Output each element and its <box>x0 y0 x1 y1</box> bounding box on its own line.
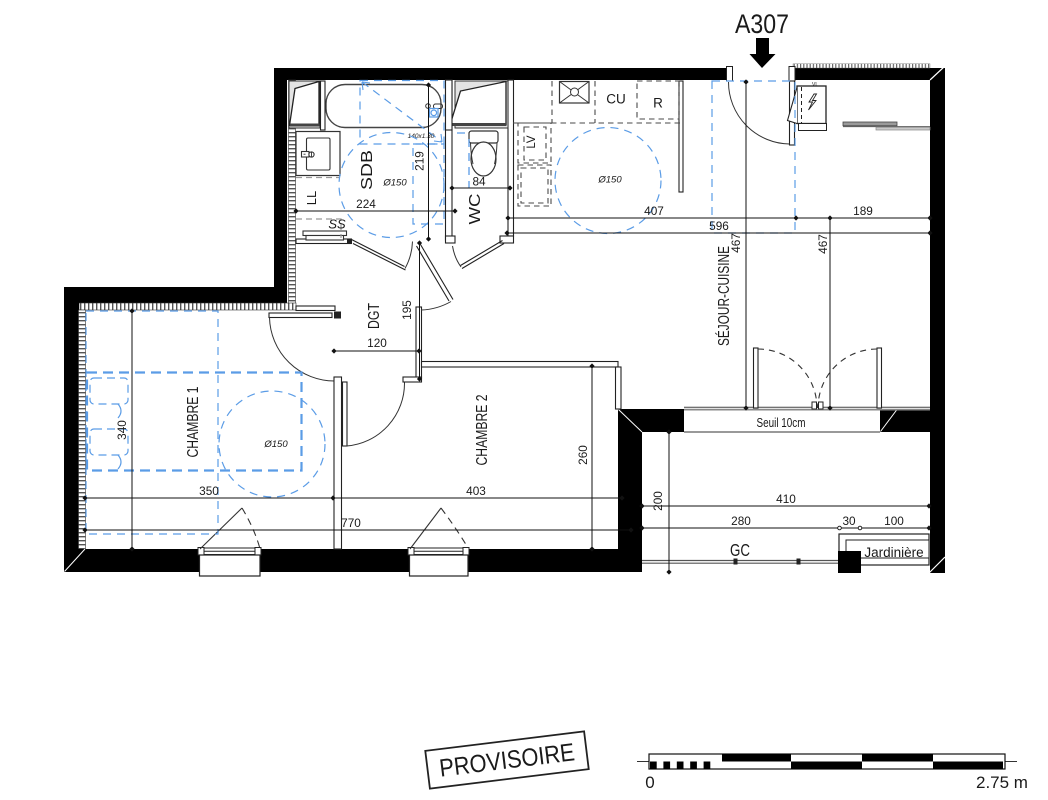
svg-text:0: 0 <box>645 773 654 792</box>
svg-text:DGT: DGT <box>366 303 383 329</box>
svg-text:195: 195 <box>400 300 414 320</box>
svg-text:SS: SS <box>328 217 346 232</box>
svg-text:Seuil 10cm: Seuil 10cm <box>757 416 806 430</box>
svg-text:189: 189 <box>853 204 873 218</box>
svg-text:770: 770 <box>341 516 361 530</box>
svg-text:GC: GC <box>730 540 750 560</box>
svg-text:120: 120 <box>367 336 387 350</box>
svg-text:596: 596 <box>709 219 729 233</box>
svg-text:410: 410 <box>776 492 796 506</box>
svg-text:LV: LV <box>526 135 538 149</box>
svg-text:LL: LL <box>304 191 319 205</box>
svg-text:Ø150: Ø150 <box>263 439 288 450</box>
svg-text:VL: VL <box>812 82 818 88</box>
svg-text:Ø150: Ø150 <box>382 178 407 189</box>
svg-text:30: 30 <box>842 514 856 528</box>
svg-text:SÉJOUR-CUISINE: SÉJOUR-CUISINE <box>714 246 733 346</box>
svg-text:407: 407 <box>644 204 664 218</box>
svg-text:340: 340 <box>115 420 129 440</box>
svg-text:Ø150: Ø150 <box>597 175 622 186</box>
svg-text:WC: WC <box>467 194 484 225</box>
svg-text:403: 403 <box>466 484 486 498</box>
svg-text:SDB: SDB <box>359 150 376 190</box>
svg-text:224: 224 <box>356 197 376 211</box>
svg-text:280: 280 <box>731 514 751 528</box>
svg-text:100: 100 <box>884 514 904 528</box>
svg-text:467: 467 <box>816 234 830 254</box>
svg-text:200: 200 <box>651 491 665 511</box>
svg-text:Jardinière: Jardinière <box>864 545 923 560</box>
svg-text:CU: CU <box>606 92 626 107</box>
svg-text:CHAMBRE 1: CHAMBRE 1 <box>185 386 202 457</box>
svg-text:CHAMBRE 2: CHAMBRE 2 <box>474 394 491 465</box>
svg-text:R: R <box>653 96 663 111</box>
svg-text:219: 219 <box>413 151 427 171</box>
svg-text:350: 350 <box>199 484 219 498</box>
svg-text:A307: A307 <box>735 9 789 39</box>
svg-text:2.75 m: 2.75 m <box>976 773 1028 792</box>
svg-text:260: 260 <box>576 445 590 465</box>
svg-text:84: 84 <box>472 175 486 189</box>
